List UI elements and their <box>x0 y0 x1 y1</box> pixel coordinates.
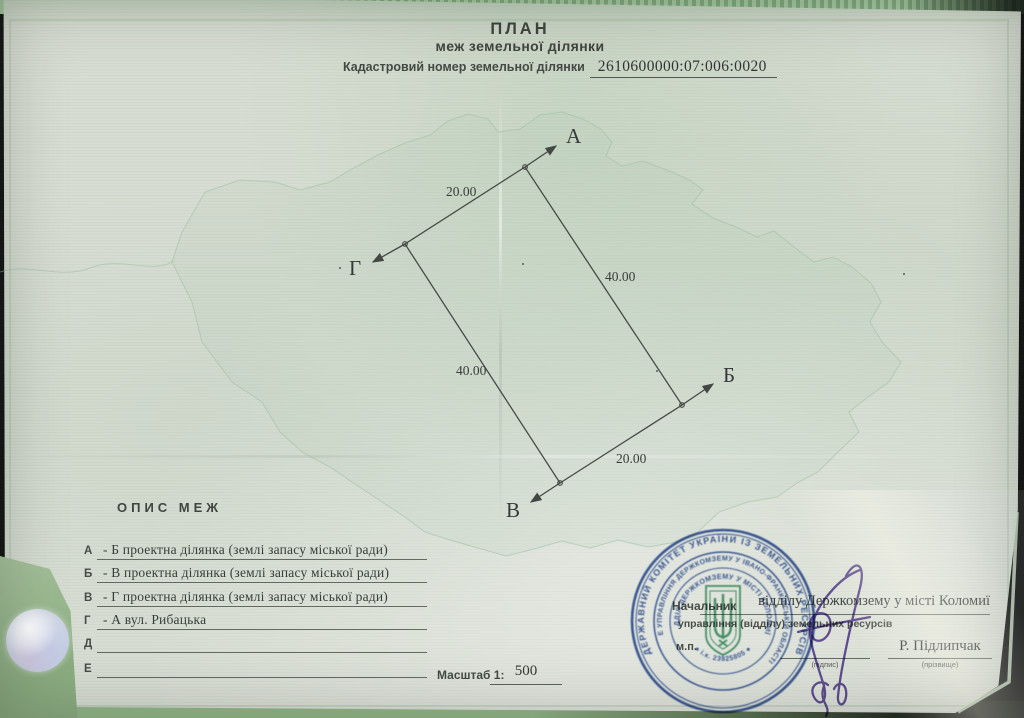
dim-left: 40.00 <box>456 363 487 378</box>
boundary-letter-v: В <box>84 592 92 604</box>
official-name: Р. Підлипчак <box>888 638 992 659</box>
signature-scrawl <box>768 548 893 718</box>
boundaries-heading: ОПИС МЕЖ <box>117 500 222 515</box>
boundary-letter-d: Д <box>84 638 92 650</box>
boundary-letter-g: Г <box>84 615 91 627</box>
boundary-text-a: - Б проектна ділянка (землі запасу міськ… <box>103 542 388 558</box>
dim-bottom: 20.00 <box>616 451 647 466</box>
scale-value: 500 <box>490 663 562 685</box>
boundary-row: - В проектна ділянка (землі запасу міськ… <box>97 562 427 583</box>
dim-right: 40.00 <box>605 269 636 284</box>
photo-of-land-plan-document: ПЛАН меж земельної ділянки Кадастровий н… <box>0 0 1024 718</box>
boundary-row: - Г проектна ділянка (землі запасу міськ… <box>97 586 427 607</box>
point-label-G: Г <box>349 256 361 280</box>
dim-top-left: 20.00 <box>446 184 477 199</box>
point-label-V: В <box>506 498 520 522</box>
name-caption: (прізвище) <box>888 660 992 669</box>
left-boundary-squiggle <box>0 262 172 272</box>
point-label-A: А <box>566 124 582 148</box>
boundary-text-g: - А вул. Рибацька <box>103 612 206 628</box>
boundary-row: - А вул. Рибацька <box>97 609 427 630</box>
boundary-row <box>97 632 427 653</box>
boundary-row <box>97 657 427 678</box>
boundary-letter-a: А <box>84 545 92 557</box>
boundary-letter-e: Е <box>84 663 92 675</box>
boundary-row: - Б проектна ділянка (землі запасу міськ… <box>97 539 427 560</box>
boundary-text-b: - В проектна ділянка (землі запасу міськ… <box>103 565 389 581</box>
boundary-text-v: - Г проектна ділянка (землі запасу міськ… <box>103 589 388 605</box>
point-label-B: Б <box>723 363 735 387</box>
adjacent-lands-contour <box>172 112 901 556</box>
boundary-letter-b: Б <box>84 568 92 580</box>
tryzub-emblem-icon <box>706 586 740 655</box>
hologram-sticker <box>6 609 69 672</box>
